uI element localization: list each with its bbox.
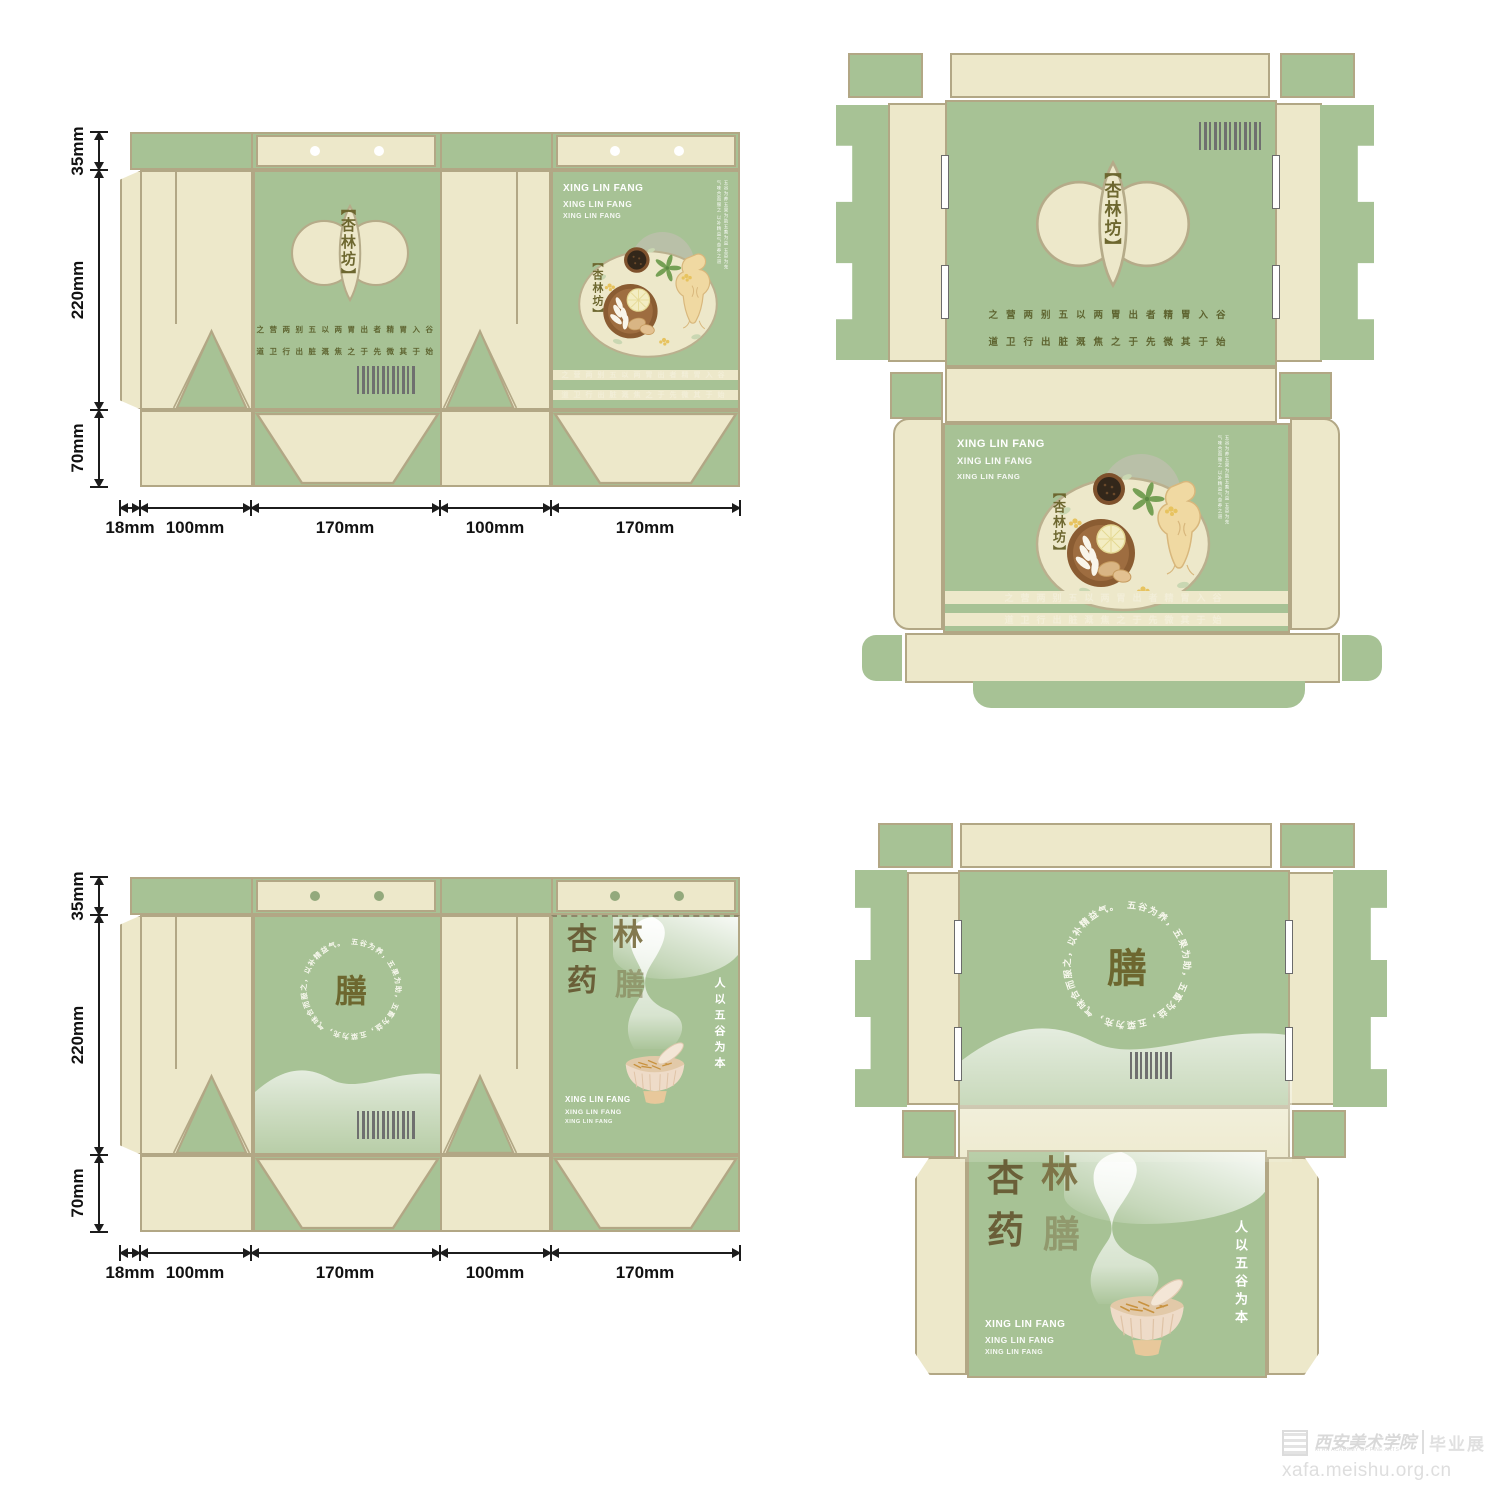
hinge-panel: [945, 367, 1277, 423]
flap-trapezoid: [553, 1157, 738, 1230]
dim-label-70mm: 70mm: [68, 423, 88, 472]
dim-tick: [90, 876, 108, 878]
hang-hole: [674, 146, 684, 156]
dust-flap-left: [855, 870, 907, 1107]
bottom-band: [905, 633, 1340, 683]
watermark-divider: [1422, 1430, 1424, 1454]
glue-flap: [120, 915, 142, 1155]
dim-tick: [139, 1245, 141, 1261]
gusset-fold: [172, 1068, 251, 1153]
brand-logo-vertical: 【杏林坊】: [589, 256, 605, 340]
brand-latin-block: XING LIN FANG XING LIN FANG XING LIN FAN…: [563, 180, 643, 223]
motto-line-2: 道卫行出脏溉焦之于先微其于始: [945, 613, 1288, 626]
dim-label-170mm: 170mm: [316, 518, 375, 538]
name-char-xing: 杏: [567, 925, 597, 955]
hinge-flap: [902, 1110, 956, 1158]
dim-arrow-100mm-b: [440, 507, 551, 509]
side-hook: [862, 635, 902, 681]
side-wall: [1275, 103, 1322, 362]
hang-tab: [556, 135, 736, 167]
brand-latin-1: XING LIN FANG: [565, 1093, 631, 1107]
bottom-flap-gusset: [253, 1155, 442, 1232]
dim-tick: [90, 486, 108, 488]
gusset-fold: [172, 323, 251, 408]
crease-line: [551, 879, 553, 913]
side-wall: [1288, 872, 1335, 1105]
side-panel: [140, 170, 253, 410]
motto-line-2: 道卫行出脏溉焦之于先微其于始: [947, 334, 1275, 348]
hang-hole: [674, 891, 684, 901]
dim-tick: [139, 500, 141, 516]
lock-slit: [954, 1027, 962, 1081]
hang-tab: [256, 880, 436, 912]
lock-slit: [954, 920, 962, 974]
dim-tick: [90, 1231, 108, 1233]
hang-hole: [310, 146, 320, 156]
dim-arrow-100mm: [140, 507, 251, 509]
dim-tick: [90, 131, 108, 133]
dim-label-18mm: 18mm: [105, 1263, 154, 1283]
tuck-tongue: [973, 681, 1305, 708]
front-panel-v1: 【杏林坊】 之营两别五以两胃出者精胃入谷 道卫行出脏溉焦之于先微其于始: [253, 170, 442, 410]
dim-tick: [90, 409, 108, 411]
lid-panel-v2: 五谷为养，五果为助，五畜为益，五菜为充，气味合而服之，以补精益气。 膳: [958, 870, 1290, 1107]
dim-tick: [250, 1245, 252, 1261]
name-char-yao: 药: [987, 1212, 1024, 1249]
gusset-fold: [442, 1068, 518, 1153]
motto-line-2: 道卫行出脏溉焦之于先微其于始: [553, 390, 738, 400]
dim-tick: [739, 1245, 741, 1261]
motto-line-1: 之营两别五以两胃出者精胃入谷: [553, 370, 738, 380]
brand-latin-3: XING LIN FANG: [565, 1118, 631, 1128]
roll-flap-left: [893, 418, 943, 630]
dieline-box-2: 35mm 220mm 70mm 18mm 100mm 170mm 100mm 1…: [70, 867, 770, 1297]
slogan-vertical: 人以五谷为本: [1231, 1220, 1250, 1348]
dust-flap-right: [1333, 870, 1387, 1107]
lock-slit: [1272, 265, 1280, 319]
motto-line-1: 之营两别五以两胃出者精胃入谷: [947, 307, 1275, 321]
hang-hole: [374, 146, 384, 156]
barcode: [357, 366, 417, 394]
brand-latin-1: XING LIN FANG: [985, 1316, 1065, 1333]
brand-latin-2: XING LIN FANG: [957, 454, 1045, 470]
roll-flap-right: [1290, 418, 1340, 630]
dieline-box-1: 35mm 220mm 70mm 18mm 100mm 170mm 100mm 1…: [70, 122, 770, 552]
hang-hole: [310, 891, 320, 901]
brand-latin-1: XING LIN FANG: [563, 180, 643, 197]
dust-flap-right: [1320, 105, 1374, 360]
roll-flap-left: [915, 1157, 967, 1375]
name-char-yao: 药: [567, 967, 597, 997]
dim-label-70mm: 70mm: [68, 1168, 88, 1217]
dim-arrow-170mm: [251, 1252, 440, 1254]
barcode: [1199, 122, 1261, 150]
brand-logo-vertical: 【杏林坊】: [1049, 485, 1068, 585]
dust-flap-left: [836, 105, 890, 360]
brand-latin-2: XING LIN FANG: [565, 1107, 631, 1119]
lock-slit: [1285, 920, 1293, 974]
dim-label-170mm-b: 170mm: [616, 1263, 675, 1283]
lock-slit: [1272, 155, 1280, 209]
lid-panel-v2-flat: 五谷为养，五果为助，五畜为益，五菜为充，气味合而服之，以补精益气。 膳: [253, 915, 442, 1155]
dim-label-170mm-b: 170mm: [616, 518, 675, 538]
crease-line: [251, 134, 253, 168]
side-panel: [140, 915, 253, 1155]
dim-arrow-70mm: [98, 1155, 100, 1232]
dim-label-35mm: 35mm: [68, 126, 88, 175]
watermark-url: xafa.meishu.org.cn: [1282, 1460, 1452, 1482]
dim-tick: [119, 1245, 121, 1261]
brand-latin-2: XING LIN FANG: [563, 197, 643, 211]
crease-line: [251, 879, 253, 913]
hinge-flap: [890, 372, 943, 419]
brand-latin-3: XING LIN FANG: [985, 1347, 1065, 1359]
dim-arrow-220mm: [98, 170, 100, 410]
lock-slit: [1285, 1027, 1293, 1081]
crease-line: [551, 134, 553, 168]
dim-tick: [439, 1245, 441, 1261]
motto-line-1: 之营两别五以两胃出者精胃入谷: [945, 591, 1288, 604]
hang-hole: [374, 891, 384, 901]
brand-latin-1: XING LIN FANG: [957, 435, 1045, 454]
front-panel-v2-flat: 杏 林 药 膳 人以五谷为本 XING LIN FANG XING LIN FA…: [551, 915, 740, 1155]
side-panel: [440, 170, 551, 410]
brand-logo-vertical: 【杏林坊】: [337, 200, 358, 310]
glue-flap: [120, 170, 142, 410]
dim-tick: [90, 169, 108, 171]
brand-latin-2: XING LIN FANG: [985, 1333, 1065, 1347]
dim-label-100mm: 100mm: [166, 518, 225, 538]
top-flap: [950, 53, 1270, 98]
lock-slit: [941, 155, 949, 209]
top-flap: [960, 823, 1272, 868]
folded-box-2: 五谷为养，五果为助，五畜为益，五菜为充，气味合而服之，以补精益气。 膳 杏 林: [840, 815, 1420, 1400]
crease-line: [440, 134, 442, 168]
barcode: [1130, 1052, 1174, 1079]
hang-tab: [256, 135, 436, 167]
dim-arrow-100mm-b: [440, 1252, 551, 1254]
name-char-shan: 膳: [1043, 1216, 1080, 1253]
dim-arrow-35mm: [98, 877, 100, 915]
hinge-flap: [1292, 1110, 1346, 1158]
watermark-exhibit: 毕业展: [1429, 1430, 1486, 1455]
crease-line: [175, 172, 177, 324]
gusset-fold: [442, 323, 518, 408]
dim-tick: [550, 1245, 552, 1261]
side-wall: [907, 872, 960, 1105]
flap-trapezoid: [255, 412, 440, 485]
brand-latin-3: XING LIN FANG: [563, 211, 643, 223]
top-flap: [848, 53, 923, 98]
bottom-flap: [440, 1155, 551, 1232]
dim-label-100mm: 100mm: [166, 1263, 225, 1283]
crease-line: [516, 172, 518, 324]
watermark-org-en: XI'AN ACADEMY OF FINE ARTS: [1315, 1447, 1399, 1453]
folded-box-1: 【杏林坊】 之营两别五以两胃出者精胃入谷 道卫行出脏溉焦之于先微其于始 XING…: [820, 40, 1395, 720]
brand-logo-vertical: 【杏林坊】: [1099, 162, 1124, 288]
side-wall: [888, 103, 947, 362]
side-note-vertical: 五谷为养五果为助五畜为益 五菜为充气味合而服之 以补精益气食养之道: [1217, 435, 1231, 530]
lock-slit: [941, 265, 949, 319]
dim-arrow-35mm: [98, 132, 100, 170]
packaging-design-sheet: 35mm 220mm 70mm 18mm 100mm 170mm 100mm 1…: [0, 0, 1500, 1500]
watermark: 西安美术学院 XI'AN ACADEMY OF FINE ARTS 毕业展 xa…: [1282, 1428, 1497, 1492]
motto-line-2: 道卫行出脏溉焦之于先微其于始: [255, 346, 440, 357]
dim-label-220mm: 220mm: [68, 261, 88, 320]
dim-arrow-170mm-b: [551, 507, 740, 509]
flap-trapezoid: [553, 412, 738, 485]
side-panel: [440, 915, 551, 1155]
dim-tick: [90, 914, 108, 916]
name-char-xing: 杏: [987, 1160, 1024, 1197]
dim-label-100mm-b: 100mm: [466, 1263, 525, 1283]
dim-arrow-170mm-b: [551, 1252, 740, 1254]
top-flap: [1280, 823, 1355, 868]
bottom-flap-gusset: [253, 410, 442, 487]
name-char-lin: 林: [613, 921, 643, 951]
bowl-illustration: [1081, 1270, 1213, 1376]
roll-flap-right: [1267, 1157, 1319, 1375]
hang-hole: [610, 891, 620, 901]
wave-overlay: [960, 977, 1292, 1162]
bottom-flap: [140, 410, 253, 487]
top-flap: [878, 823, 953, 868]
dim-tick: [119, 500, 121, 516]
dim-label-170mm: 170mm: [316, 1263, 375, 1283]
side-hook: [1342, 635, 1382, 681]
dim-arrow-220mm: [98, 915, 100, 1155]
slogan-vertical: 人以五谷为本: [711, 977, 727, 1093]
dim-label-220mm: 220mm: [68, 1006, 88, 1065]
dim-arrow-70mm: [98, 410, 100, 487]
crease-line: [516, 917, 518, 1069]
side-note-vertical: 五谷为养五果为助五畜为益 五菜为充气味合而服之 以补精益气食养之道: [716, 180, 730, 272]
back-panel-v1: XING LIN FANG XING LIN FANG XING LIN FAN…: [551, 170, 740, 410]
barcode: [357, 1111, 417, 1139]
dim-tick: [439, 500, 441, 516]
motto-line-1: 之营两别五以两胃出者精胃入谷: [255, 324, 440, 335]
brand-latin-block: XING LIN FANG XING LIN FANG XING LIN FAN…: [565, 1093, 631, 1128]
watermark-logo-icon: [1282, 1430, 1308, 1456]
dim-arrow-170mm: [251, 507, 440, 509]
dim-tick: [739, 500, 741, 516]
dim-tick: [250, 500, 252, 516]
dim-arrow-100mm: [140, 1252, 251, 1254]
hinge-flap: [1279, 372, 1332, 419]
dim-tick: [90, 1154, 108, 1156]
name-char-lin: 林: [1041, 1156, 1078, 1193]
dim-arrow-18mm: [120, 1252, 140, 1254]
dim-label-100mm-b: 100mm: [466, 518, 525, 538]
shan-character: 膳: [335, 966, 367, 1012]
crease-line: [175, 917, 177, 1069]
front-face-v1: XING LIN FANG XING LIN FANG XING LIN FAN…: [943, 423, 1290, 633]
brand-latin-3: XING LIN FANG: [957, 470, 1045, 483]
flap-trapezoid: [255, 1157, 440, 1230]
dim-arrow-18mm: [120, 507, 140, 509]
dim-label-18mm: 18mm: [105, 518, 154, 538]
front-face-v2: 杏 林 药 膳 人以五谷为本 XING LIN FANG XING LIN FA…: [967, 1150, 1267, 1378]
bottom-flap: [140, 1155, 253, 1232]
dim-label-35mm: 35mm: [68, 871, 88, 920]
hang-tab: [556, 880, 736, 912]
dim-tick: [550, 500, 552, 516]
top-flap: [1280, 53, 1355, 98]
brand-latin-block: XING LIN FANG XING LIN FANG XING LIN FAN…: [957, 435, 1045, 483]
name-char-shan: 膳: [615, 971, 645, 1001]
hang-hole: [610, 146, 620, 156]
lid-panel-v1: 【杏林坊】 之营两别五以两胃出者精胃入谷 道卫行出脏溉焦之于先微其于始: [945, 100, 1277, 367]
bottom-flap-gusset: [551, 1155, 740, 1232]
bottom-flap: [440, 410, 551, 487]
bottom-flap-gusset: [551, 410, 740, 487]
brand-latin-block: XING LIN FANG XING LIN FANG XING LIN FAN…: [985, 1316, 1065, 1359]
crease-line: [440, 879, 442, 913]
